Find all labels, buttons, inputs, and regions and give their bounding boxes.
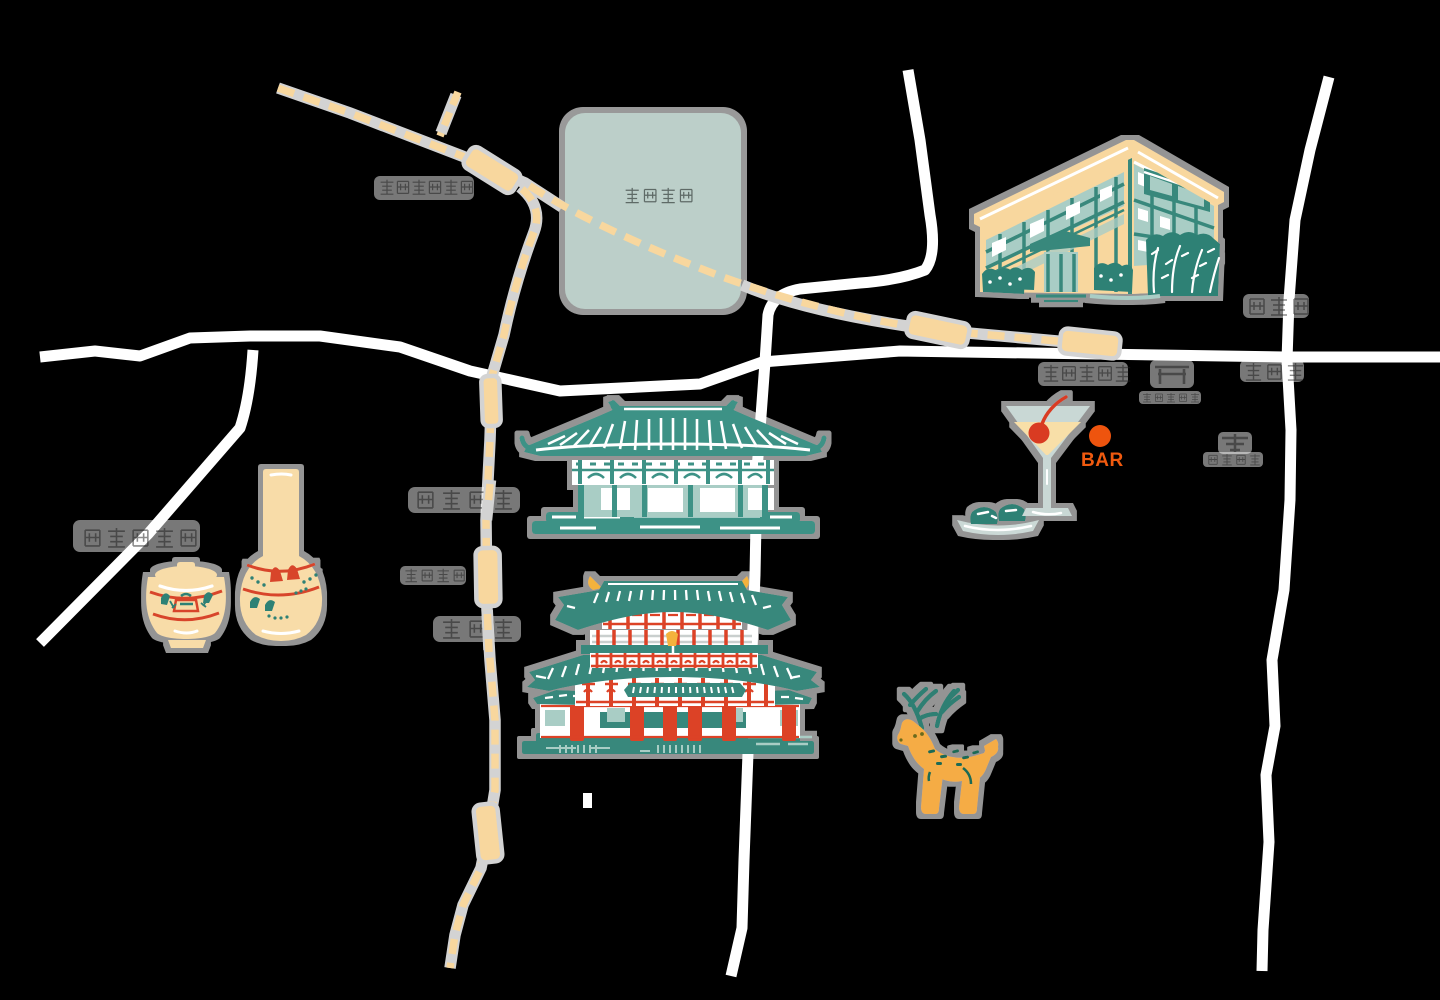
svg-text:BAR: BAR [1081, 450, 1124, 471]
